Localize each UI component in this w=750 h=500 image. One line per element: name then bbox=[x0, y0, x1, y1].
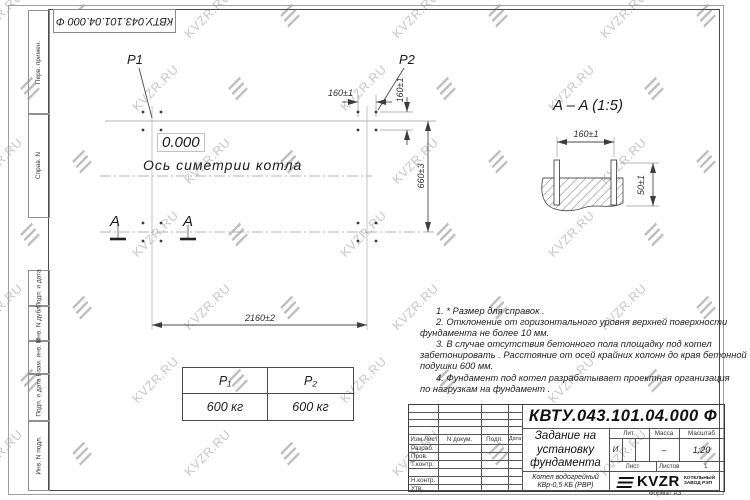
tb-sheets-label: Листов bbox=[659, 463, 679, 470]
product-name-line: Котел водогрейный bbox=[522, 474, 609, 482]
document-title: Задание на установку фундамента bbox=[522, 430, 609, 471]
tb-row-prov: Пров. bbox=[411, 453, 428, 460]
note-line: забетонировать . Расстояние от осей край… bbox=[420, 350, 748, 361]
load-table-header-p1: P₁ bbox=[183, 368, 268, 394]
note-line: фундамента не более 10 мм. bbox=[420, 328, 748, 339]
tb-lit-label: Лит. bbox=[609, 430, 649, 437]
tb-scale-label: Масштаб bbox=[679, 430, 724, 437]
section-view-title: A – A (1:5) bbox=[538, 97, 638, 114]
kvzr-logo-caption: КОТЕЛЬНЫЙ ЗАВОД РЭП bbox=[684, 476, 715, 487]
section-dim-160: 160±1 bbox=[562, 129, 610, 139]
product-name: Котел водогрейный КВр-0,5 КБ (РВР) bbox=[522, 474, 609, 490]
load-point-p1-label: P1 bbox=[127, 52, 143, 67]
tb-row-nkontr: Н.контр. bbox=[411, 477, 435, 484]
load-table-value-p2: 600 кг bbox=[268, 394, 353, 420]
tb-row-razrab: Разраб. bbox=[411, 445, 434, 452]
kvzr-logo-icon bbox=[616, 475, 634, 488]
note-line: 3. В случае отсутствия бетонного пола пл… bbox=[420, 339, 748, 350]
document-title-line: Задание на bbox=[522, 430, 609, 444]
drawing-content: КВТУ.043.101.04.000 Ф Перв. примен. Спра… bbox=[0, 0, 750, 500]
note-line: 4. Фундамент под котел разрабатывает про… bbox=[420, 373, 748, 384]
drawing-sheet: KVZR.RUKVZR.RUKVZR.RUKVZR.RUKVZR.RUKVZR.… bbox=[0, 0, 750, 500]
tb-row-utv: Утв. bbox=[411, 485, 423, 492]
kvzr-logo-text: KVZR bbox=[637, 473, 680, 490]
anchor-bolts bbox=[142, 111, 378, 243]
tb-sheets-value: 1 bbox=[704, 463, 708, 470]
load-table: P₁ P₂ 600 кг 600 кг bbox=[182, 367, 354, 421]
note-line: подушки 600 мм. bbox=[420, 361, 748, 372]
document-designation: КВТУ.043.101.04.000 Ф bbox=[522, 405, 724, 428]
load-table-header-p2: P₂ bbox=[268, 368, 353, 394]
product-name-line: КВр-0,5 КБ (РВР) bbox=[522, 482, 609, 490]
tb-col-n-dokum: N докум. bbox=[438, 436, 481, 443]
document-title-line: фундамента bbox=[522, 457, 609, 471]
load-table-value-p1: 600 кг bbox=[183, 394, 268, 420]
symmetry-axis-label: Ось симетрии котла bbox=[143, 157, 302, 173]
dim-160-vertical: 160±1 bbox=[395, 72, 405, 108]
tb-col-data: Дата bbox=[508, 436, 522, 442]
tb-mass-value: – bbox=[649, 438, 679, 461]
kvzr-logo-caption-line: ЗАВОД РЭП bbox=[684, 481, 715, 486]
note-line: по нагрузкам на фундамент . bbox=[420, 384, 748, 395]
title-block: Изм.Лист N докум. Подп. Дата Разраб. Про… bbox=[408, 404, 725, 492]
load-point-p2-label: P2 bbox=[399, 52, 415, 67]
section-letter-a-right: A bbox=[183, 213, 193, 230]
section-dim-50: 50±1 bbox=[636, 166, 646, 204]
tb-scale-value: 1:20 bbox=[679, 438, 724, 461]
dim-660: 660±3 bbox=[416, 158, 426, 194]
note-line: 1. * Размер для справок . bbox=[420, 306, 748, 317]
tb-sheet-label: Лист bbox=[609, 463, 656, 470]
dim-2160: 2160±2 bbox=[227, 313, 293, 323]
format-label: Формат А3 bbox=[615, 490, 715, 497]
note-line: 2. Отклонение от горизонтального уровня … bbox=[420, 317, 748, 328]
document-title-line: установку bbox=[522, 444, 609, 458]
tb-row-tkontr: Т.контр. bbox=[411, 461, 434, 468]
tb-lit-value: И bbox=[609, 438, 622, 461]
section-letter-a-left: A bbox=[110, 213, 120, 230]
tb-col-izm-list: Изм.Лист bbox=[410, 436, 438, 443]
level-mark: 0.000 bbox=[157, 133, 205, 152]
tb-col-podp: Подп. bbox=[481, 436, 508, 443]
dim-160-horizontal: 160±1 bbox=[328, 88, 353, 98]
notes-block: 1. * Размер для справок . 2. Отклонение … bbox=[420, 306, 748, 395]
tb-mass-label: Масса bbox=[649, 430, 679, 437]
factory-logo: KVZR КОТЕЛЬНЫЙ ЗАВОД РЭП bbox=[609, 471, 724, 491]
